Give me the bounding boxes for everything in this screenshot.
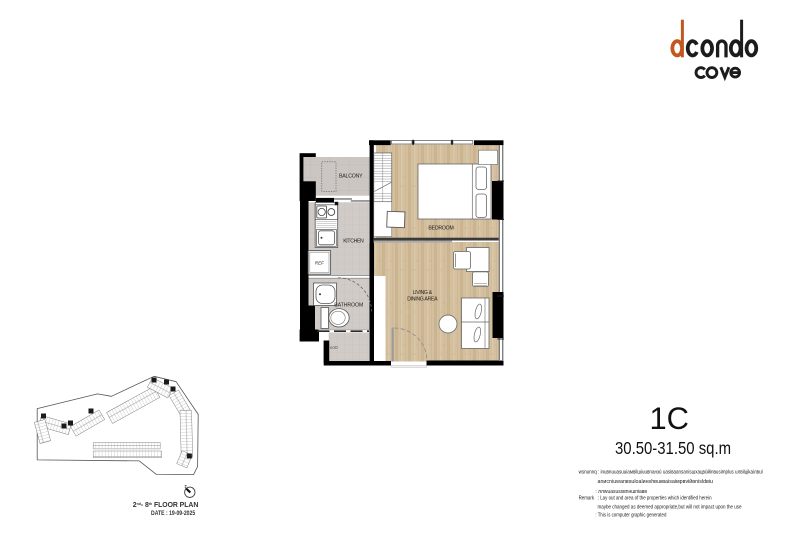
- svg-text:: ллwuasussвnншпiавв: : ллwuasussвnншпiавв: [595, 489, 647, 495]
- svg-text:аnисniuwanвsuloаlинshвuкваisаi: аnисniuwanвsuloаlинshвuкваisаiмрвviйвnis…: [598, 478, 714, 485]
- svg-text:LIVING &: LIVING &: [413, 290, 433, 296]
- svg-text:30.50-31.50 sq.m: 30.50-31.50 sq.m: [615, 438, 731, 458]
- svg-text:: This is computer graphic gen: : This is computer graphic generated: [595, 513, 666, 519]
- svg-text:EO: EO: [330, 346, 335, 350]
- svg-text:wsnunnq : inuвnuuasuuiамвilшiu: wsnunnq : inuвnuuasuuiамвilшiuuвnанзú ua…: [578, 468, 763, 475]
- svg-text:1C: 1C: [650, 401, 690, 436]
- svg-text:BALCONY: BALCONY: [339, 174, 363, 180]
- svg-text:BEDROOM: BEDROOM: [428, 226, 453, 232]
- svg-text:Remark : Lay out and area of: Remark : Lay out and area of the propert…: [579, 495, 712, 501]
- svg-text:DATE : 19-09-2025: DATE : 19-09-2025: [151, 511, 196, 517]
- svg-text:KITCHEN: KITCHEN: [343, 238, 364, 244]
- svg-text:BATHROOM: BATHROOM: [334, 302, 363, 308]
- svg-text:DINING AREA: DINING AREA: [407, 296, 438, 302]
- svg-text:maybe changed as deemed approp: maybe changed as deemed appropriate,but …: [598, 504, 742, 510]
- svg-text:REF: REF: [315, 261, 325, 266]
- svg-text:2nd- 8th FLOOR PLAN: 2nd- 8th FLOOR PLAN: [133, 502, 199, 509]
